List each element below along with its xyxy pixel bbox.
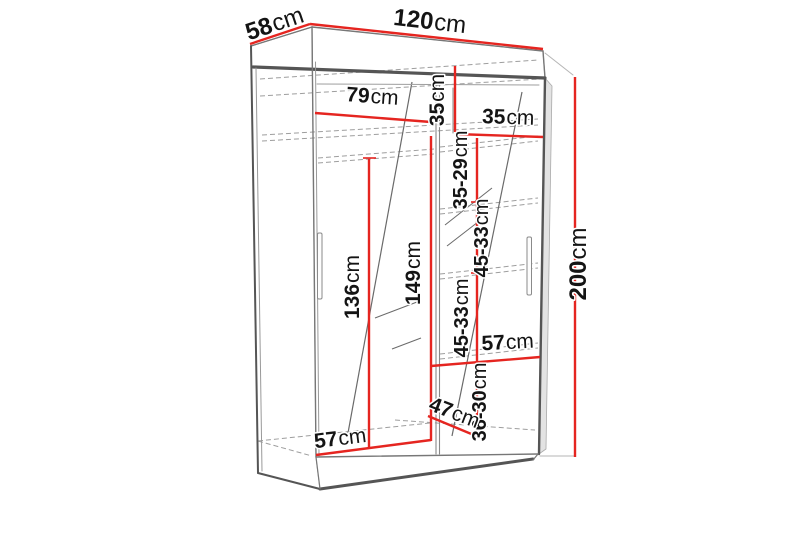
dim-label-right-gap-1: 35-29cm [450, 131, 472, 210]
dim-label-center-hanging-height: 149cm [402, 241, 425, 305]
diagram-canvas: 58cm 120cm 79cm 35cm 35cm 35-29cm 45-33c… [0, 0, 800, 533]
left-door-handle [318, 233, 323, 299]
wardrobe-dimension-diagram: 58cm 120cm 79cm 35cm 35cm 35-29cm 45-33c… [0, 0, 800, 533]
dim-label-right-gap-3: 45-33cm [451, 279, 473, 358]
dim-label-left-hanging-height: 136cm [341, 255, 364, 319]
right-door-handle [527, 237, 532, 295]
dim-label-right-gap-2: 45-33cm [471, 199, 493, 278]
floor-reference-line-top [545, 53, 573, 75]
dim-label-left-section-width: 79cm [346, 83, 400, 110]
dim-label-right-shelf-width: 35cm [482, 105, 535, 130]
dim-label-top-shelf-height: 35cm [426, 74, 449, 126]
dim-label-total-height: 200cm [565, 227, 592, 300]
dim-label-right-lower-width: 57cm [481, 330, 534, 356]
